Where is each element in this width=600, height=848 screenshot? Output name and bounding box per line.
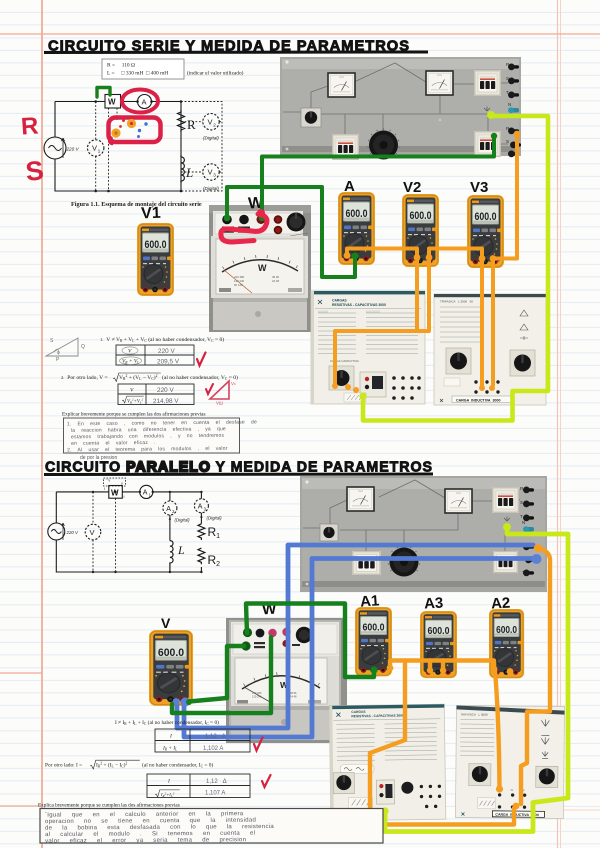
svg-text:214,98 V: 214,98 V <box>153 398 179 405</box>
svg-text:1,107 A: 1,107 A <box>205 791 225 797</box>
svg-text:A: A <box>142 97 147 106</box>
svg-text:1,102 A: 1,102 A <box>203 746 223 752</box>
svg-text:VR2 + (VL − VC)2: VR2 + (VL − VC)2 <box>119 374 158 381</box>
svg-text:1,12 A: 1,12 A <box>205 734 226 740</box>
svg-text:TRIFASICA L 3000: TRIFASICA L 3000 <box>460 712 487 716</box>
svg-text:A: A <box>143 490 148 497</box>
svg-text:48 96: 48 96 <box>290 691 297 695</box>
svg-text:1,12 Δ: 1,12 Δ <box>206 779 227 785</box>
svg-text:W: W <box>258 263 267 273</box>
svg-text:△△△△△: △△△△△ <box>318 310 329 313</box>
svg-text:VШ: VШ <box>216 401 223 406</box>
svg-text:1: 1 <box>98 149 101 154</box>
svg-text:RESISTIVAS - CAPACITIVAS 300: RESISTIVAS - CAPACITIVAS 3000 <box>351 714 404 719</box>
svg-text:Figura 1.1. Esquema de montaje: Figura 1.1. Esquema de montaje del circu… <box>71 201 202 208</box>
svg-text:2. Por otro lado, V =: 2. Por otro lado, V = <box>61 375 108 381</box>
svg-text:Por otro lado: I =: Por otro lado: I = <box>45 763 82 769</box>
svg-text:V3: V3 <box>470 179 488 196</box>
svg-text:A: A <box>166 506 171 513</box>
svg-text:W: W <box>108 98 116 107</box>
svg-text:V: V <box>208 168 213 177</box>
svg-text:A3: A3 <box>424 595 444 613</box>
svg-text:L = □ 330 mH □ 400 mH: L = □ 330 mH □ 400 mH <box>107 71 168 77</box>
svg-text:N: N <box>511 788 513 792</box>
svg-text:1. V ≠ VR + VL + VC (al no ha: 1. V ≠ VR + VL + VC (al no haber condens… <box>100 336 224 343</box>
svg-text:T: T <box>520 514 523 519</box>
svg-text:(al no haber condensador, VC =: (al no haber condensador, VC = 0) <box>162 374 238 381</box>
svg-text:I: I <box>167 779 170 785</box>
svg-text:ϕ: ϕ <box>57 350 60 356</box>
svg-text:3: 3 <box>213 173 216 178</box>
svg-text:V: V <box>92 144 97 153</box>
svg-text:V: V <box>130 388 134 394</box>
svg-text:V2: V2 <box>403 179 421 196</box>
svg-text:△△△△△△△: △△△△△△△ <box>366 310 381 313</box>
svg-text:ˉˉv: ˉˉv <box>106 479 110 483</box>
svg-text:Explica brevemente porque se c: Explica brevemente porque se cumplen las… <box>38 802 180 809</box>
svg-text:v: v <box>121 482 123 486</box>
svg-text:IR2 + (IL − IC)2: IR2 + (IL − IC)2 <box>96 762 127 769</box>
svg-text:S: S <box>520 500 523 505</box>
svg-text:Vₙ: Vₙ <box>231 381 236 386</box>
svg-text:CARGA INDUCTIVA 3000: CARGA INDUCTIVA 3000 <box>456 398 500 402</box>
svg-text:60 120: 60 120 <box>234 283 243 287</box>
svg-text:V: V <box>128 349 132 355</box>
svg-text:P: P <box>56 357 60 363</box>
svg-text:Q: Q <box>81 344 85 350</box>
svg-text:IR + IL: IR + IL <box>162 746 177 752</box>
svg-text:220 V: 220 V <box>158 348 176 355</box>
svg-text:V: V <box>161 615 171 631</box>
svg-text:A: A <box>344 178 355 195</box>
svg-text:R1: R1 <box>208 525 221 540</box>
svg-text:IR2+IL2: IR2+IL2 <box>160 791 175 798</box>
svg-text:24 48: 24 48 <box>272 279 279 283</box>
svg-text:W: W <box>111 489 119 498</box>
svg-text:VR2+VL2: VR2+VL2 <box>127 398 144 405</box>
svg-text:Explicar brevemente porque se: Explicar brevemente porque se cumplen la… <box>62 411 205 418</box>
svg-text:(Digital): (Digital) <box>175 518 191 523</box>
svg-text:S: S <box>24 155 45 187</box>
svg-text:(Digital): (Digital) <box>203 186 219 191</box>
svg-text:209,5 V: 209,5 V <box>157 358 180 365</box>
svg-text:N: N <box>508 102 511 107</box>
svg-text:TRIFASICA L 3000 50: TRIFASICA L 3000 50 <box>440 300 473 304</box>
svg-text:220 V: 220 V <box>157 387 175 394</box>
svg-text:R: R <box>20 112 39 140</box>
svg-text:2: 2 <box>213 122 216 127</box>
svg-text:V1: V1 <box>141 205 161 223</box>
svg-text:L: L <box>185 165 193 180</box>
svg-text:(Digital): (Digital) <box>203 136 219 141</box>
svg-text:S: S <box>50 338 54 344</box>
svg-text:L: L <box>177 543 185 557</box>
svg-text:R = 110 Ω: R = 110 Ω <box>107 63 135 69</box>
svg-text:220 V: 220 V <box>66 530 80 535</box>
svg-text:A1: A1 <box>360 592 380 610</box>
svg-text:I ≠ IR + IL + IC (al no haber: I ≠ IR + IL + IC (al no haber condensado… <box>115 719 219 726</box>
svg-text:S: S <box>506 139 509 144</box>
svg-text:RESISTIVAS - CAPACITIVAS 300: RESISTIVAS - CAPACITIVAS 3000 <box>332 303 386 307</box>
svg-text:A2: A2 <box>491 595 511 613</box>
svg-text:(indicar el valor utilizado): (indicar el valor utilizado) <box>187 70 244 77</box>
svg-text:(al no haber condensador, IC =: (al no haber condensador, IC = 0) <box>142 762 213 769</box>
svg-text:(Digital): (Digital) <box>207 516 223 521</box>
svg-text:120 240: 120 240 <box>252 695 262 699</box>
svg-text:24 48: 24 48 <box>290 695 297 699</box>
svg-text:A: A <box>198 504 203 511</box>
svg-text:220 V: 220 V <box>66 147 80 152</box>
svg-text:V: V <box>90 528 95 537</box>
svg-text:V: V <box>208 117 213 126</box>
svg-text:240 480: 240 480 <box>252 691 262 695</box>
svg-text:de por la presion: de por la presion <box>80 455 117 461</box>
svg-text:I: I <box>169 734 172 740</box>
svg-text:R2: R2 <box>208 553 221 568</box>
svg-text:I: I <box>104 487 105 491</box>
svg-text:R: R <box>187 117 196 132</box>
svg-text:I: I <box>124 495 125 499</box>
